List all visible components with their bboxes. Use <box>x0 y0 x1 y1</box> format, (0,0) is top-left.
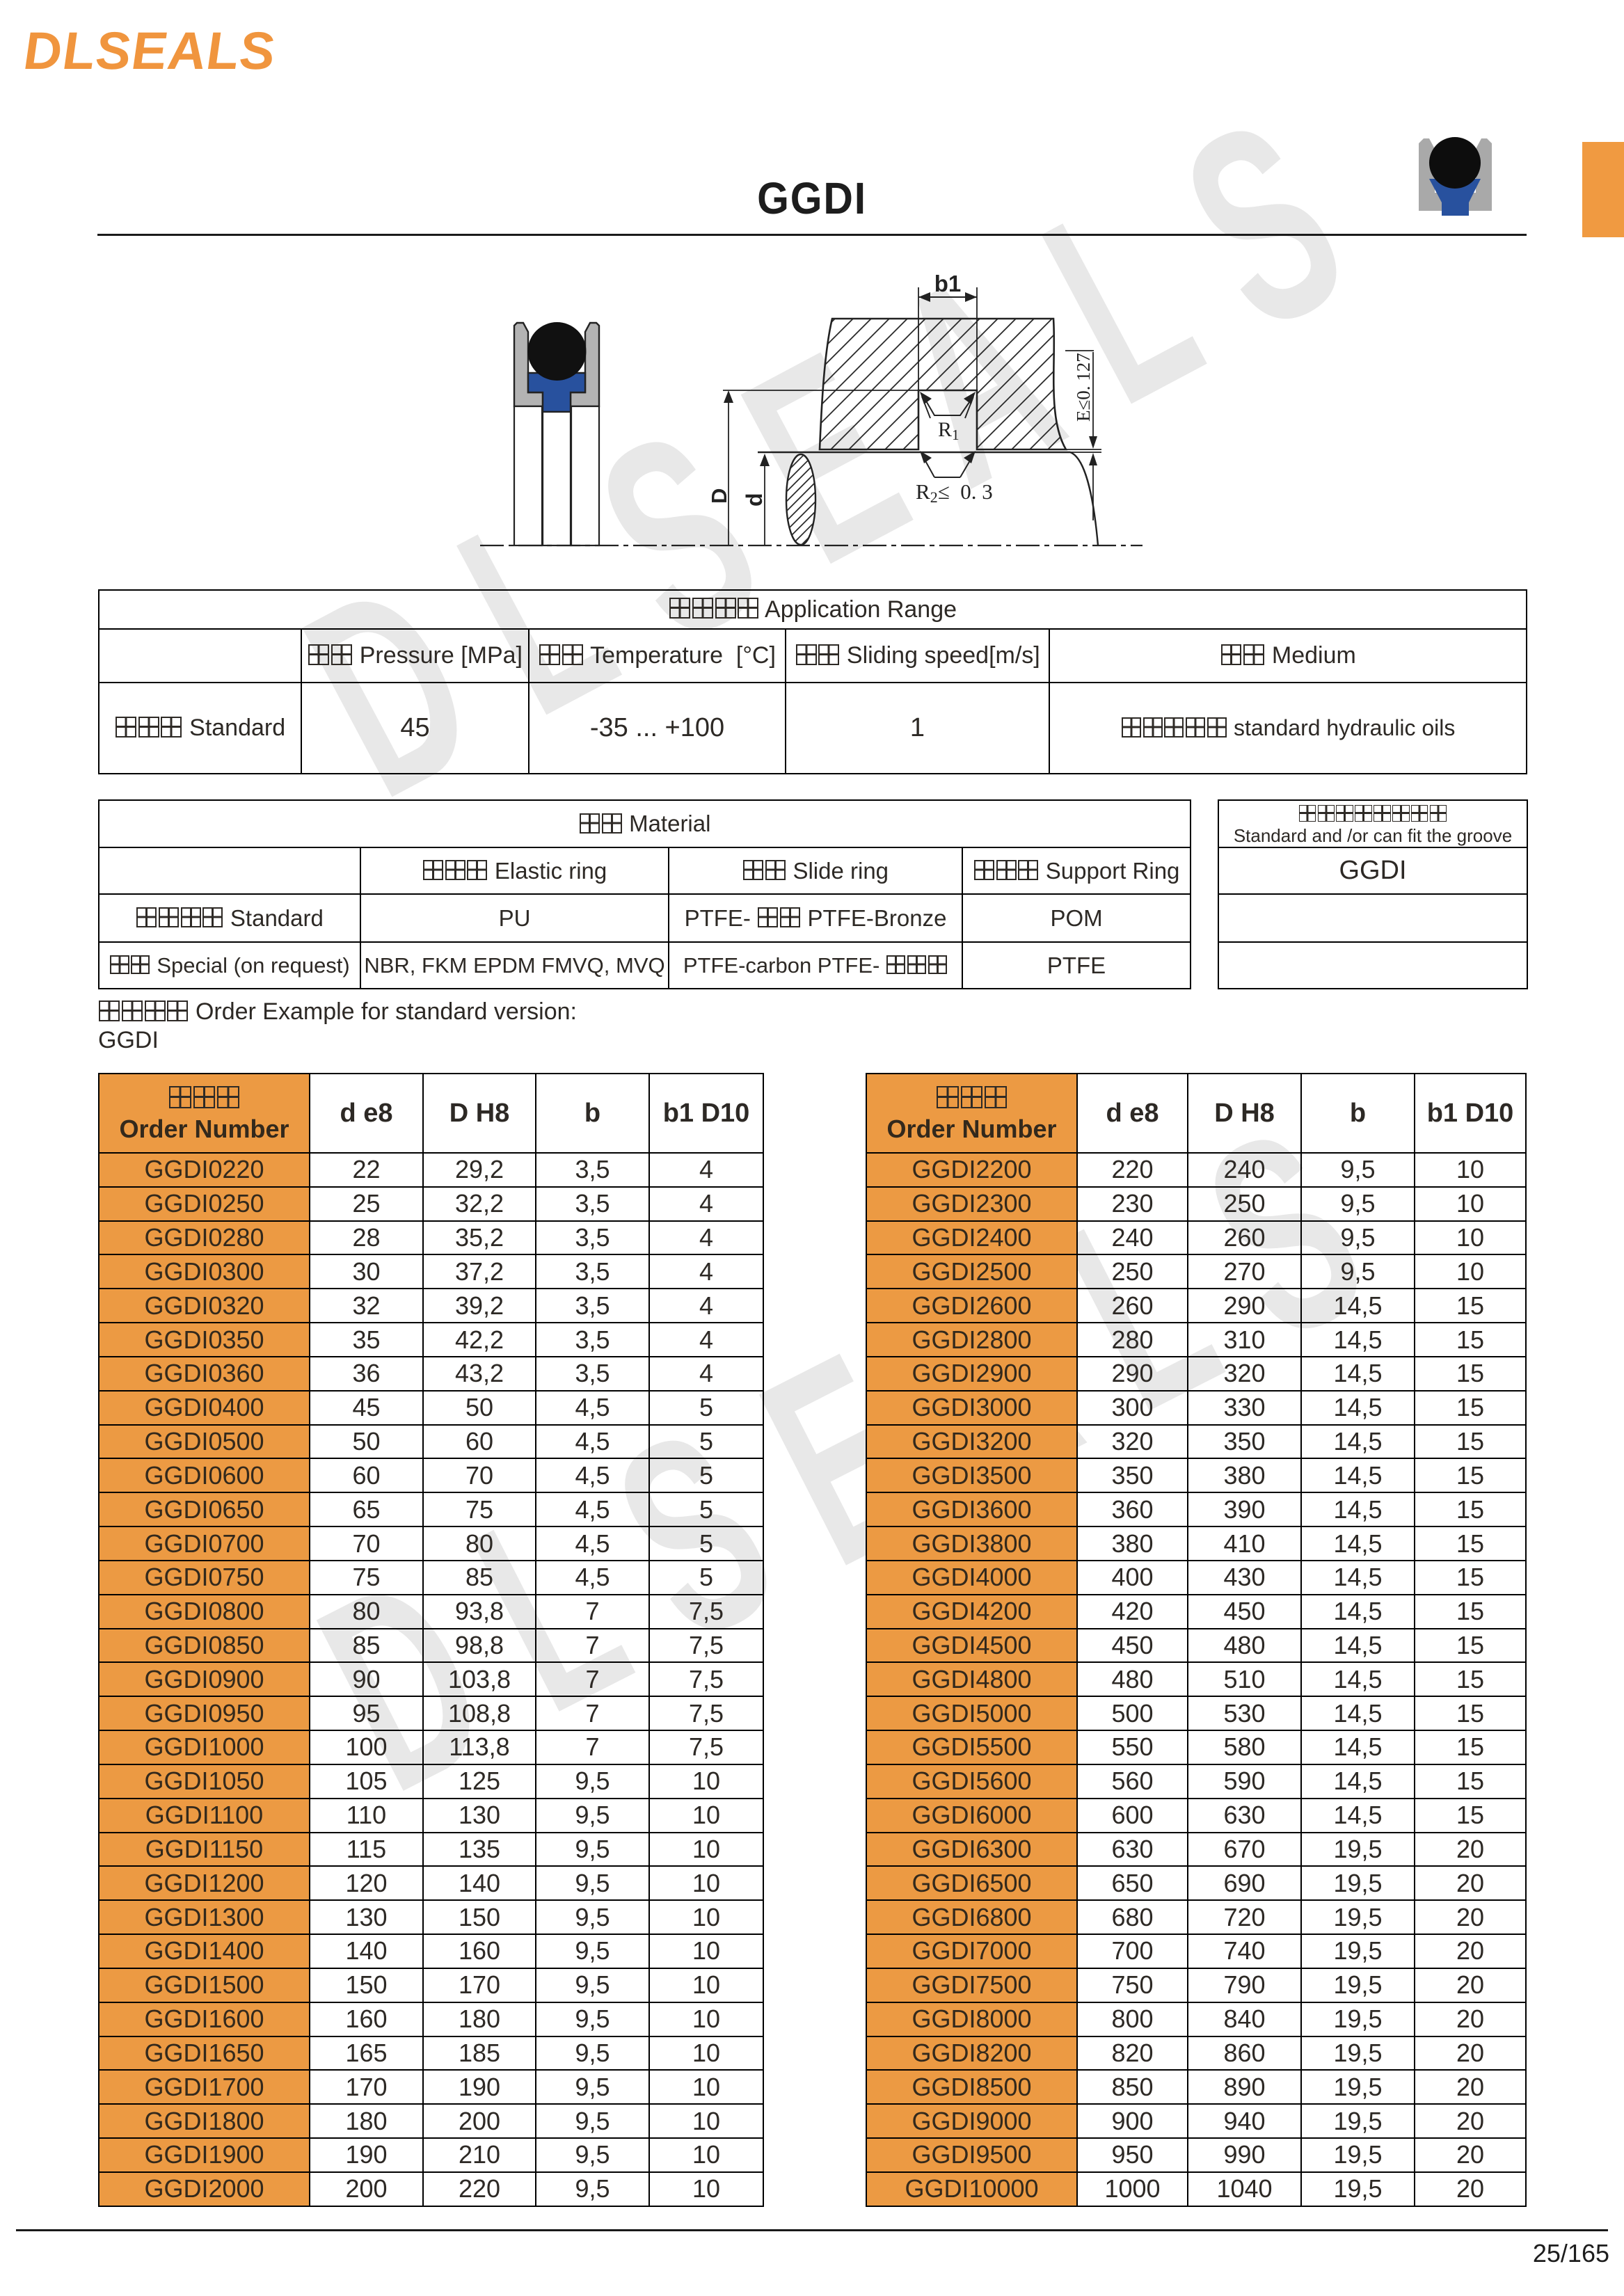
svg-text:D: D <box>707 488 731 504</box>
svg-text:R1: R1 <box>938 418 960 443</box>
svg-text:b1: b1 <box>934 271 962 296</box>
svg-text:d: d <box>742 493 767 507</box>
svg-text:R2≤ 0. 3: R2≤ 0. 3 <box>916 479 993 506</box>
svg-text:E≤0. 127: E≤0. 127 <box>1073 353 1094 422</box>
